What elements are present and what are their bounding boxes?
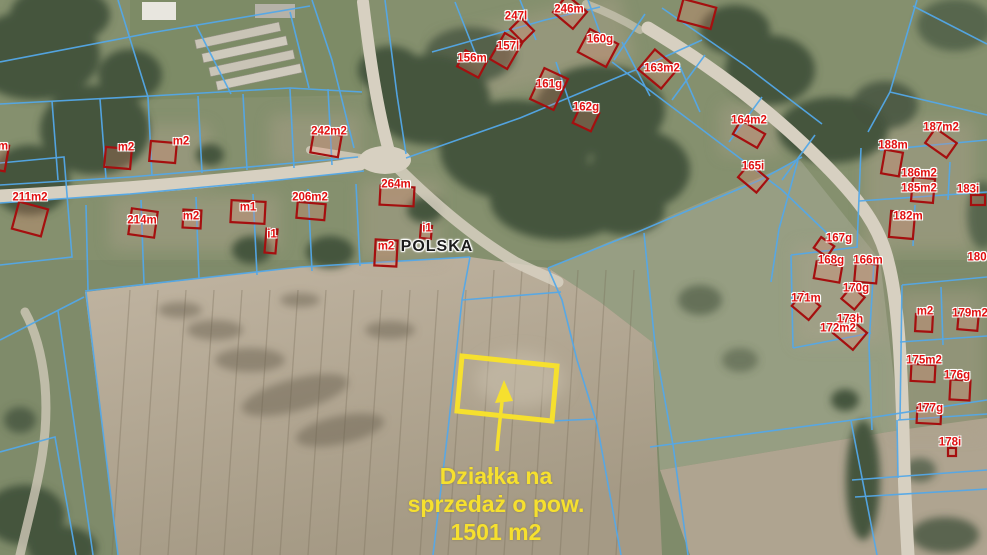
sale-annotation-line2: sprzedaż o pow. [408, 490, 585, 518]
building-outline [530, 68, 568, 110]
building-outline [911, 364, 936, 382]
building-outline [814, 237, 835, 257]
building-outline [490, 33, 522, 69]
building-outline [948, 448, 956, 456]
building-outline [230, 200, 265, 224]
building-outline [578, 29, 618, 67]
building-outline [104, 147, 132, 169]
building-outline [310, 131, 341, 158]
building-outline [573, 105, 600, 132]
building-outline [264, 229, 277, 254]
building-outline [553, 0, 587, 29]
map-canvas[interactable]: 247l246m156m157l160g163m2161g162g164m216… [0, 0, 987, 555]
sale-annotation-line3: 1501 m2 [408, 518, 585, 546]
building-outline [971, 195, 985, 205]
building-outline [420, 225, 432, 239]
sale-annotation-line1: Działka na [408, 462, 585, 490]
building-outline [841, 286, 864, 309]
building-outline [678, 0, 717, 29]
building-outline [128, 208, 157, 237]
building-outline [733, 120, 765, 148]
building-outline [380, 186, 415, 207]
building-outline [638, 49, 678, 88]
building-outline [0, 143, 9, 172]
building-outline [915, 314, 933, 332]
country-label: POLSKA [401, 238, 474, 256]
building-outline [881, 150, 903, 177]
building-outline [296, 202, 325, 220]
building-outline [149, 141, 177, 163]
building-outline [854, 263, 878, 284]
building-outline [833, 316, 867, 350]
building-outline [911, 177, 935, 203]
building-outline [917, 406, 942, 424]
building-outline [374, 239, 397, 266]
building-outline [183, 210, 202, 229]
building-outlines [0, 0, 985, 456]
building-outline [457, 50, 487, 77]
building-outline [949, 379, 970, 400]
building-outline [925, 128, 957, 158]
sale-annotation: Działka na sprzedaż o pow. 1501 m2 [408, 462, 585, 546]
building-outline [889, 211, 915, 239]
building-outline [957, 313, 978, 331]
building-outline [792, 292, 820, 320]
building-outline [12, 202, 48, 237]
building-outline [814, 261, 843, 282]
